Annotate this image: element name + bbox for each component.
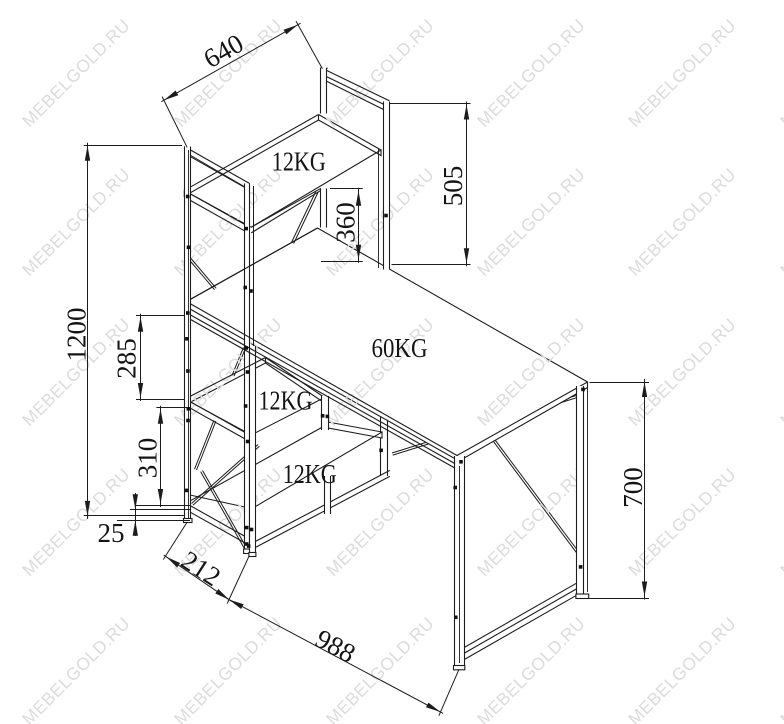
svg-text:12KG: 12KG [283, 459, 337, 489]
svg-text:505: 505 [438, 166, 468, 207]
svg-text:285: 285 [112, 338, 142, 379]
svg-text:360: 360 [331, 202, 361, 243]
svg-text:60KG: 60KG [372, 333, 428, 363]
svg-text:700: 700 [618, 467, 648, 508]
svg-text:25: 25 [98, 518, 125, 548]
svg-text:1200: 1200 [62, 308, 92, 362]
svg-text:12KG: 12KG [259, 386, 313, 416]
svg-text:310: 310 [133, 438, 163, 479]
svg-text:12KG: 12KG [272, 147, 326, 177]
